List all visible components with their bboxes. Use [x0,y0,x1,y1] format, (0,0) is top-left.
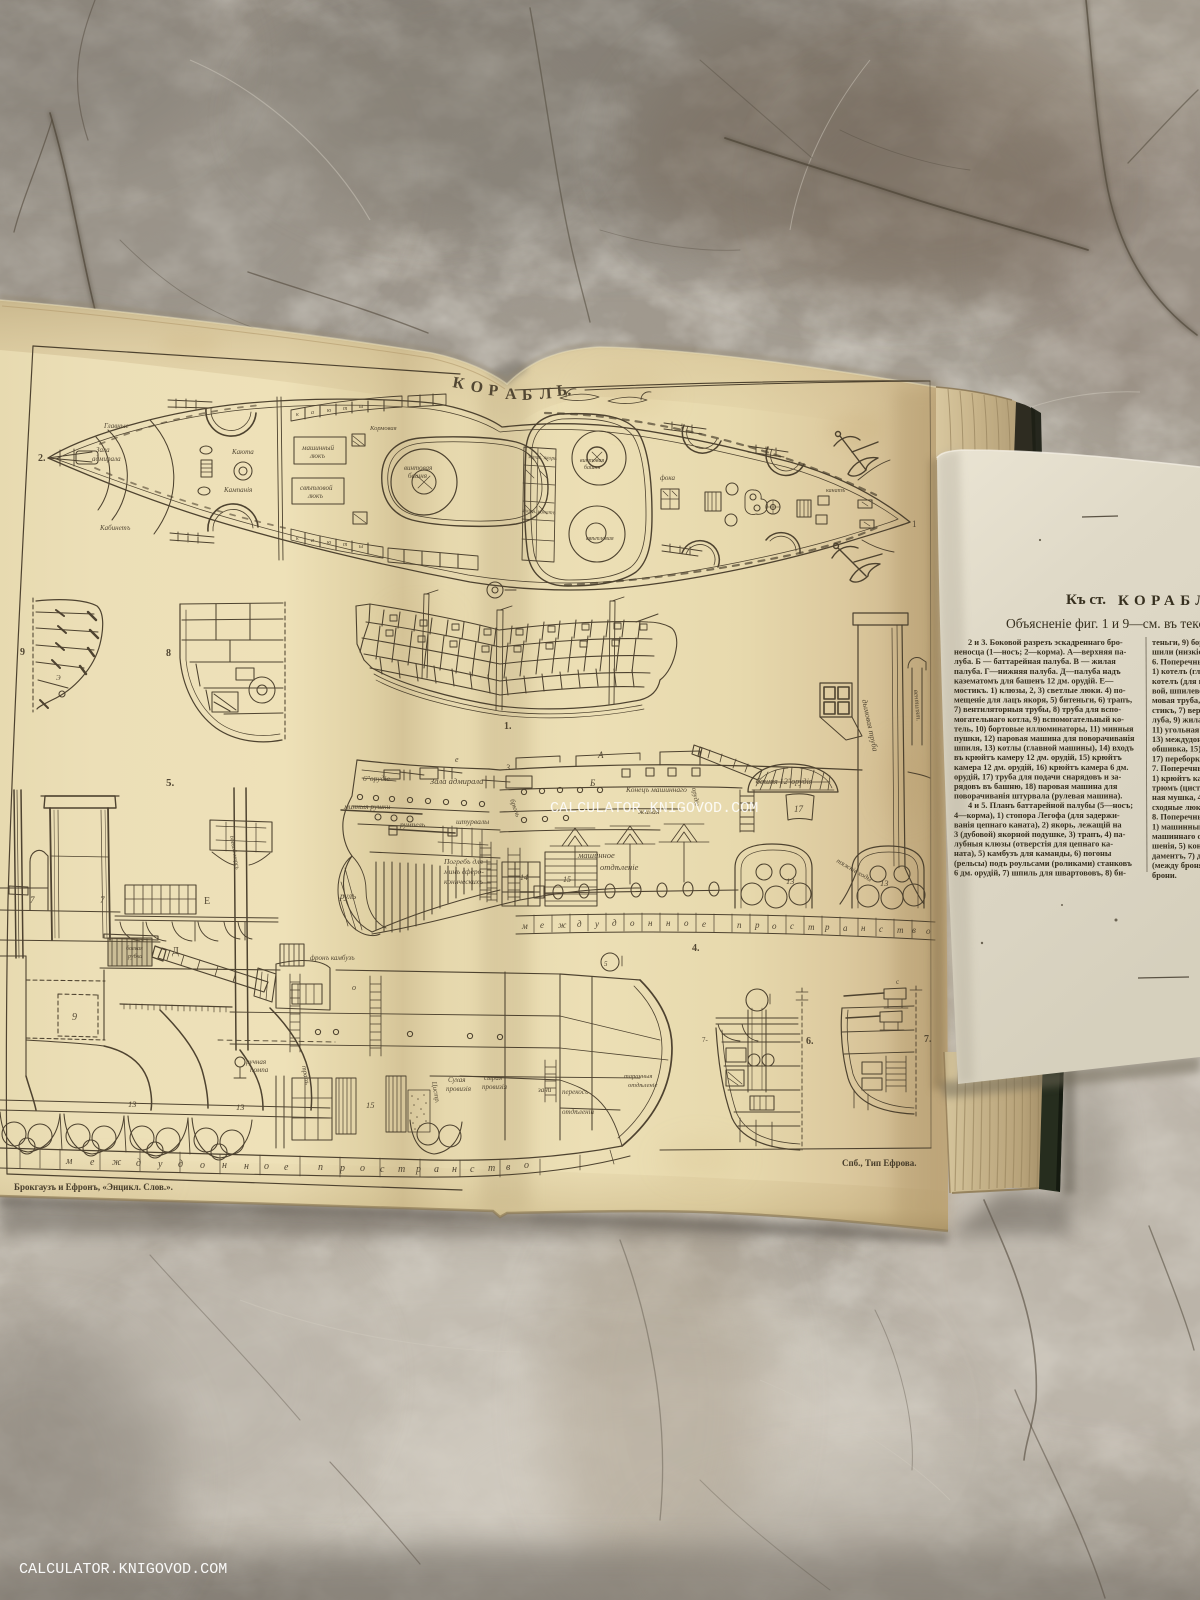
svg-text:Сухая: Сухая [448,1076,465,1084]
svg-text:у: у [157,1159,163,1170]
svg-text:CALCULATOR.KNIGOVOD.COM: CALCULATOR.KNIGOVOD.COM [19,1560,227,1578]
svg-text:9: 9 [72,1012,77,1023]
svg-text:Спб., Тип Ефрова.: Спб., Тип Ефрова. [842,1158,916,1168]
svg-text:отдѣленіе: отдѣленіе [628,1082,657,1089]
svg-text:о: о [684,918,689,928]
svg-text:о: о [630,918,635,928]
svg-text:м: м [521,921,528,931]
svg-text:о: о [200,1160,205,1171]
svg-text:н: н [861,923,866,933]
svg-text:теньги, 9) борто: теньги, 9) борто [1152,638,1200,647]
svg-text:т: т [343,406,348,412]
svg-text:боевая: боевая [126,945,143,952]
svg-text:люкъ: люкъ [307,492,323,500]
svg-text:4—корма), 1) стопора Легофа (д: 4—корма), 1) стопора Легофа (для задержи… [954,811,1120,820]
svg-text:т: т [897,925,904,935]
svg-text:Кабинетъ: Кабинетъ [99,524,131,532]
svg-text:башня: башня [408,472,427,480]
svg-text:7: 7 [100,895,105,905]
svg-text:Зала адмирала: Зала адмирала [430,776,483,786]
svg-text:казематомъ для башенъ 12 дм. о: казематомъ для башенъ 12 дм. орудій. Е— [954,676,1114,685]
svg-text:д: д [136,1158,141,1169]
svg-text:р: р [415,1164,421,1175]
svg-text:13: 13 [880,878,889,888]
svg-text:ы: ы [359,544,363,550]
svg-text:брони.: брони. [1152,871,1177,880]
svg-text:тель, 10) бортовые иллюминатор: тель, 10) бортовые иллюминаторы, 11) мин… [954,724,1134,733]
svg-text:Главные: Главные [103,422,129,430]
svg-text:стикъ, 7) верхня: стикъ, 7) верхня [1152,706,1200,715]
svg-text:17) переборка.: 17) переборка. [1152,754,1200,763]
svg-text:м: м [65,1156,73,1167]
svg-text:котелъ (для всп: котелъ (для всп [1152,677,1200,686]
svg-text:Брокгаузъ и Ефронъ, «Энцикл. С: Брокгаузъ и Ефронъ, «Энцикл. Слов.». [14,1182,173,1192]
svg-text:н: н [244,1161,249,1172]
svg-text:н: н [222,1160,227,1171]
svg-text:7) вентиляторныя трубы, 8) тру: 7) вентиляторныя трубы, 8) труба для всп… [954,705,1121,714]
svg-text:машинное: машинное [577,850,615,860]
svg-text:14: 14 [520,873,528,882]
svg-text:свѣтловая: свѣтловая [586,536,614,542]
svg-text:канатъ: канатъ [826,488,845,494]
svg-text:Б: Б [522,387,533,404]
svg-text:отдѣленіе: отдѣленіе [600,862,639,872]
svg-text:коннческихъ: коннческихъ [444,877,483,886]
svg-text:1) котелъ (глав: 1) котелъ (глав [1152,667,1200,676]
svg-text:неносца (1—носъ; 2—корма). А—в: неносца (1—носъ; 2—корма). А—верхняя па- [954,648,1127,657]
svg-text:с: с [380,1164,385,1175]
svg-text:13: 13 [128,1099,137,1109]
svg-text:н: н [452,1164,457,1175]
svg-text:ванія цепнаго каната), 2) якор: ванія цепнаго каната), 2) якорь, лежащій… [954,820,1122,829]
svg-text:мостикъ. 1) клюзы, 2, 3) светл: мостикъ. 1) клюзы, 2, 3) светлые люки. 4… [954,686,1126,695]
svg-text:А: А [597,750,604,760]
svg-text:А: А [505,386,517,403]
svg-text:4 и 5. Планъ баттарейной палу: 4 и 5. Планъ баттарейной палубы (5—носъ; [968,801,1133,810]
svg-text:даментъ, 7) друг: даментъ, 7) друг [1152,851,1200,860]
svg-text:камера 12 дм. орудій, 16) крюй: камера 12 дм. орудій, 16) крюйтъ камера … [954,763,1128,772]
svg-text:д: д [178,1159,183,1170]
svg-text:провизія: провизія [482,1083,507,1091]
svg-text:орудій, 17) труба для подачи с: орудій, 17) труба для подачи снарядовъ и… [954,772,1121,781]
svg-text:ната), 5) камбузъ для каманды,: ната), 5) камбузъ для каманды, 6) погоны [954,849,1112,858]
svg-text:Л: Л [539,385,552,403]
svg-text:1) крюйтъ камер: 1) крюйтъ камер [1152,774,1200,783]
svg-text:Е: Е [204,896,210,907]
svg-text:таранныя: таранныя [624,1073,652,1080]
svg-text:5: 5 [604,960,608,968]
svg-text:е: е [90,1157,95,1168]
svg-text:башня 12"орудія: башня 12"орудія [756,777,813,786]
svg-text:ная мушка, 4): ная мушка, 4) [1152,793,1200,802]
svg-text:о: о [352,983,356,992]
svg-text:мовая труба, 5): мовая труба, 5) [1152,696,1200,705]
svg-text:отдѣленіи: отдѣленіи [562,1108,595,1116]
svg-text:а: а [843,923,848,933]
svg-text:1.: 1. [504,721,512,732]
svg-text:ж: ж [558,920,567,930]
svg-text:д: д [612,918,617,928]
svg-text:люкъ: люкъ [309,452,325,460]
svg-text:е: е [540,920,544,930]
svg-text:е: е [455,755,459,764]
svg-text:Объясненіе фиг. 1 и 9—см. въ т: Объясненіе фиг. 1 и 9—см. въ текс [1006,616,1200,631]
svg-text:CALCULATOR.KNIGOVOD.COM: CALCULATOR.KNIGOVOD.COM [550,799,758,817]
svg-text:о: о [264,1161,269,1172]
svg-text:7: 7 [30,895,35,905]
svg-text:Конецъ машиннаго: Конецъ машиннаго [625,785,687,794]
svg-text:6"орудіе: 6"орудіе [363,774,390,783]
svg-text:Ь.: Ь. [556,382,572,400]
svg-text:винтовая: винтовая [404,464,432,472]
svg-text:т: т [808,922,815,932]
svg-text:штурвалы: штурвалы [456,817,489,826]
svg-text:трюмъ (цистерн: трюмъ (цистерн [1152,784,1200,793]
svg-text:палуба. Г—нижняя палуба. Д—пал: палуба. Г—нижняя палуба. Д—палуба надъ [954,667,1121,676]
svg-text:с: с [470,1164,475,1175]
svg-text:7-: 7- [702,1036,709,1044]
svg-text:3: 3 [505,763,510,772]
svg-text:15: 15 [366,1100,375,1110]
svg-text:е: е [284,1162,289,1173]
svg-text:т: т [488,1163,495,1174]
svg-text:о: о [926,926,931,936]
svg-text:в: в [912,925,916,935]
svg-text:фока: фока [660,474,675,482]
svg-text:машинный: машинный [301,444,334,452]
svg-text:фронъ камбузъ: фронъ камбузъ [310,954,355,962]
svg-text:винтовая: винтовая [580,458,604,464]
svg-text:Кормовая: Кормовая [369,425,397,432]
svg-text:3 (дубовой) якорной подушке, 3: 3 (дубовой) якорной подушке, 3) трапъ, 4… [954,830,1126,839]
svg-text:перекосъ: перекосъ [562,1088,589,1096]
svg-text:сходные люки.: сходные люки. [1152,803,1200,812]
svg-text:помпа: помпа [250,1066,269,1074]
svg-text:е: е [702,919,706,929]
svg-text:а: а [434,1164,439,1175]
svg-text:луба, 9) жилая: луба, 9) жилая [1152,716,1200,725]
svg-text:к: к [296,536,299,542]
svg-text:минъ сферо-: минъ сферо- [443,867,484,876]
svg-text:1: 1 [912,519,917,529]
svg-text:1) машинный ко: 1) машинный ко [1152,822,1200,831]
svg-text:руль: руль [339,891,356,901]
svg-text:(между бронями: (между бронями [1152,861,1200,870]
svg-text:(рельсы) подъ роульсами (ролик: (рельсы) подъ роульсами (роликами) станк… [954,859,1132,868]
svg-text:о: о [524,1160,529,1171]
svg-text:15: 15 [563,875,571,884]
svg-text:п: п [318,1162,323,1173]
svg-text:шили (низкіе ш: шили (низкіе ш [1152,648,1200,657]
svg-text:КОРАБЛ: КОРАБЛ [1118,593,1200,609]
svg-text:н: н [666,918,671,928]
svg-text:р: р [754,920,760,930]
svg-text:д: д [577,919,582,929]
svg-text:п: п [737,920,742,930]
svg-text:11) угольная ям: 11) угольная ям [1152,725,1200,734]
svg-text:2 и 3. Боковой разрезъ эскадр: 2 и 3. Боковой разрезъ эскадреннаго бро- [968,638,1123,647]
svg-text:Б: Б [589,778,596,788]
svg-text:н: н [648,918,653,928]
svg-text:обшивка, 15) бо: обшивка, 15) бо [1152,745,1200,754]
svg-text:к: к [296,412,299,418]
svg-text:т: т [398,1164,405,1175]
svg-text:мещеніе для лацъ якоря, 5) бит: мещеніе для лацъ якоря, 5) битеньги, 6) … [954,696,1132,705]
svg-text:свѣтловой: свѣтловой [300,484,333,492]
svg-text:9: 9 [20,647,25,658]
svg-text:лубныя клюзы (отверстія для це: лубныя клюзы (отверстія для цепнаго ка- [954,840,1113,849]
svg-text:шенія, 5) конден: шенія, 5) конден [1152,842,1200,851]
svg-text:въ крюйтъ камеру 12 дм. орудій: въ крюйтъ камеру 12 дм. орудій, 15) крюй… [954,753,1122,762]
svg-text:О: О [469,378,484,397]
svg-text:ручная: ручная [245,1058,266,1066]
svg-text:7. Поперечны: 7. Поперечны [1152,764,1200,773]
svg-text:а: а [311,410,314,416]
svg-text:7.: 7. [924,1034,932,1045]
svg-text:13) междудонно: 13) междудонно [1152,735,1200,744]
svg-text:поворачиванія штурвала (рулева: поворачиванія штурвала (рулевая машина). [954,792,1122,801]
svg-text:минныя рушки: минныя рушки [343,802,391,811]
svg-text:ы: ы [359,404,363,410]
svg-text:шпиля, 13) котлы (главной маши: шпиля, 13) котлы (главной машины), 14) в… [954,744,1134,753]
svg-text:6.: 6. [806,1036,814,1047]
svg-text:13: 13 [236,1102,245,1112]
svg-text:Э: Э [56,674,61,682]
svg-text:т: т [343,542,348,548]
svg-text:зани: зани [537,1086,552,1094]
svg-text:Кампанія: Кампанія [223,486,252,494]
svg-text:рубка: рубка [127,953,142,960]
svg-text:8: 8 [166,648,171,659]
svg-text:могательнаго котла, 9) вспомог: могательнаго котла, 9) вспомогательный к… [954,715,1124,724]
svg-text:с: с [879,924,883,934]
svg-text:4.: 4. [692,943,700,954]
svg-text:ж: ж [112,1157,122,1168]
svg-text:в: в [506,1162,511,1173]
svg-text:у: у [594,919,599,929]
svg-text:Зала: Зала [96,446,110,454]
svg-text:а: а [311,538,314,544]
svg-text:рядовъ въ башню, 18) паровая м: рядовъ въ башню, 18) паровая машина для [954,782,1118,791]
svg-text:машиннаго отде: машиннаго отде [1152,832,1200,841]
svg-text:р: р [339,1163,345,1174]
svg-text:о: о [772,921,777,931]
svg-text:Каюта: Каюта [231,448,254,456]
svg-text:Къ ст.: Къ ст. [1066,592,1106,608]
svg-text:17: 17 [794,804,804,814]
svg-text:пушки, 12) паровая машина для: пушки, 12) паровая машина для поворачива… [954,734,1135,743]
svg-text:сырая: сырая [484,1074,502,1082]
svg-text:с: с [896,978,899,986]
svg-text:о: о [360,1163,365,1174]
svg-text:Погребъ для: Погребъ для [443,857,483,866]
svg-text:6. Поперечны: 6. Поперечны [1152,657,1200,666]
svg-text:Р: Р [488,382,499,400]
svg-text:вой, шпилевой и: вой, шпилевой и [1152,687,1200,696]
svg-text:8. Поперечны: 8. Поперечны [1152,813,1200,822]
svg-text:р: р [824,922,830,932]
svg-text:5.: 5. [166,777,175,789]
svg-text:провизія: провизія [446,1085,471,1093]
svg-text:с: с [790,921,794,931]
svg-text:адмирала: адмирала [92,455,121,463]
svg-text:румпель: румпель [399,820,426,829]
svg-text:6 дм. орудій, 7) шпиль для шва: 6 дм. орудій, 7) шпиль для швартововъ, 8… [954,868,1126,877]
svg-text:башня: башня [584,464,601,471]
svg-text:2.: 2. [38,453,46,464]
svg-text:луба. Б — баттарейная палуба.: луба. Б — баттарейная палуба. В — жилая [954,657,1116,666]
svg-text:13: 13 [786,876,795,886]
